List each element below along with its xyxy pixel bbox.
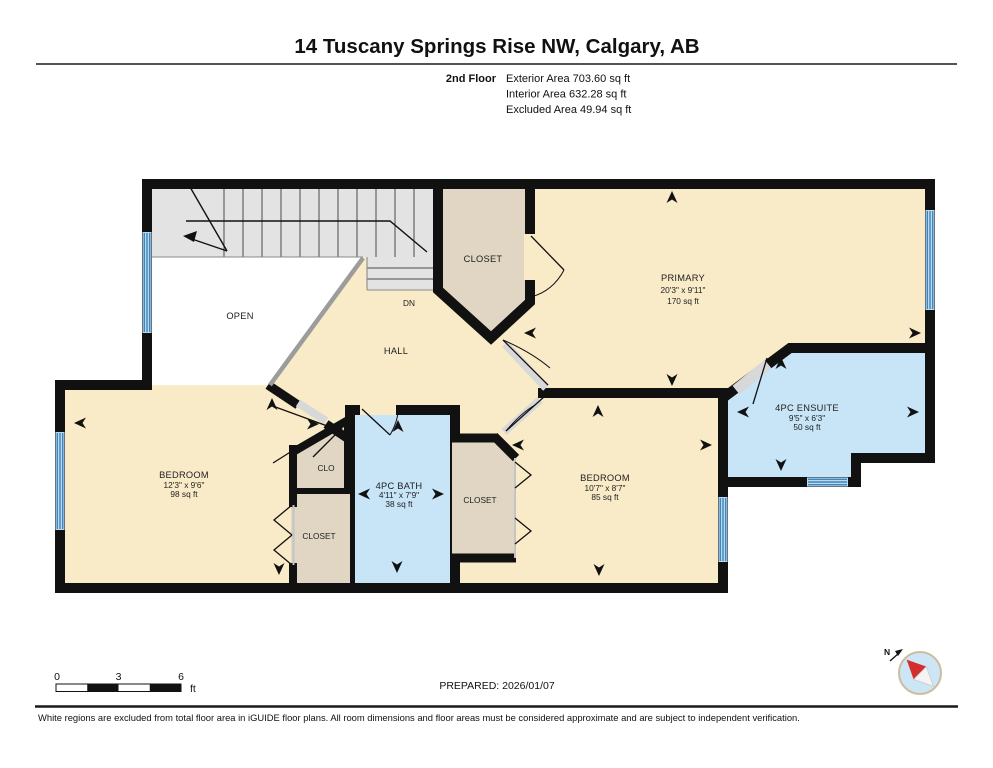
hall-label: HALL [384,346,408,356]
compass: N [884,647,941,694]
bedroom-left-area: 98 sq ft [170,489,198,499]
page-title: 14 Tuscany Springs Rise NW, Calgary, AB [294,35,699,58]
floor-label: 2nd Floor [446,73,497,85]
primary-dims: 20'3" x 9'11" [661,285,706,295]
bedroom-right-area: 85 sq ft [591,492,619,502]
floorplan-page: 14 Tuscany Springs Rise NW, Calgary, AB … [0,0,993,768]
primary-area: 170 sq ft [667,296,700,306]
scale-bar: 0 3 6 ft [54,671,196,695]
bath-area: 38 sq ft [385,499,413,509]
exterior-area: Exterior Area 703.60 sq ft [506,73,630,85]
bedroom-left-label: BEDROOM [159,470,209,480]
interior-area: Interior Area 632.28 sq ft [506,89,626,101]
scale-6: 6 [178,671,184,683]
bedroom-right-label: BEDROOM [580,473,630,483]
ensuite-label: 4PC ENSUITE [775,403,839,413]
header: 14 Tuscany Springs Rise NW, Calgary, AB … [36,35,957,116]
prepared-date: PREPARED: 2026/01/07 [439,680,555,692]
open-label: OPEN [226,311,253,321]
room-bath: 4PC BATH 4'11" x 7'9" 38 sq ft [350,410,455,588]
disclaimer: White regions are excluded from total fl… [38,712,800,723]
scale-3: 3 [116,671,122,683]
scale-unit: ft [190,683,196,695]
scale-0: 0 [54,671,60,683]
floorplan-canvas: 14 Tuscany Springs Rise NW, Calgary, AB … [0,0,993,768]
floor-plan: OPEN DN [56,184,935,588]
excluded-area: Excluded Area 49.94 sq ft [506,104,631,116]
closet-right-label: CLOSET [463,495,496,505]
closet-top-label: CLOSET [464,254,503,264]
compass-n-label: N [884,647,890,657]
closet-left-label: CLOSET [302,531,335,541]
stairs-dn-label: DN [403,298,415,308]
clo-label: CLO [317,463,335,473]
ensuite-area: 50 sq ft [793,422,821,432]
footer: 0 3 6 ft PREPARED: 2026/01/07 N White re… [35,647,958,723]
primary-label: PRIMARY [661,273,705,283]
